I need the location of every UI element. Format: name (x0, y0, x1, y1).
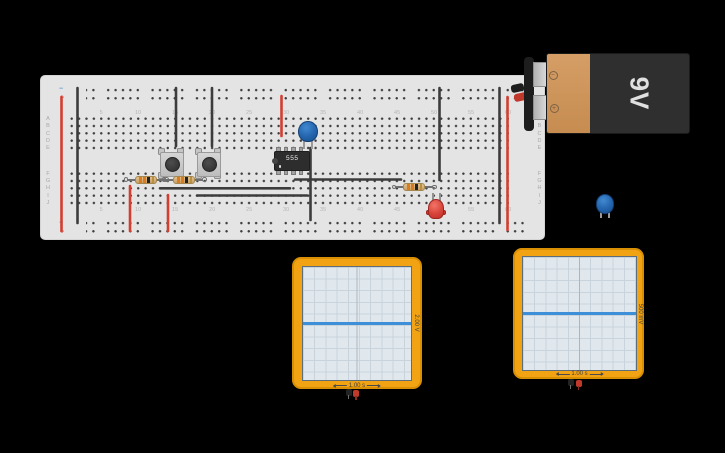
capacitor-leg (311, 141, 313, 149)
resistor-3[interactable] (403, 183, 425, 191)
pushbutton-2[interactable] (195, 148, 224, 179)
oscilloscope-screen (302, 266, 412, 382)
oscilloscope-screen (522, 256, 637, 371)
resistor-lead (165, 179, 173, 181)
resistor-band (139, 177, 142, 183)
ic-notch (272, 158, 278, 164)
resistor-lead-hook (432, 185, 437, 190)
capacitor-leg (303, 141, 305, 149)
pushbutton-1[interactable] (158, 148, 187, 179)
resistor-band (177, 177, 180, 183)
oscilloscope-trace (303, 322, 411, 325)
ic-label: 555 (286, 155, 299, 162)
battery-plus-terminal: + (550, 104, 559, 113)
battery-negative-plug[interactable] (510, 82, 524, 93)
arrow-right-icon (367, 385, 380, 386)
capacitor-disc[interactable] (596, 194, 615, 214)
ic-pin1-dot (279, 165, 282, 168)
oscilloscope-1[interactable]: 2.00 V 1.00 s (292, 257, 422, 389)
resistor-lead (127, 179, 135, 181)
resistor-body[interactable] (173, 176, 195, 184)
volts-per-div-label: 500 mV (637, 303, 643, 324)
capacitor-breadboard[interactable] (298, 121, 318, 149)
battery-body[interactable]: 9V (546, 53, 690, 134)
battery-terminal-stub (533, 95, 547, 121)
resistor-lead-hook (202, 177, 207, 182)
resistor-2[interactable] (173, 176, 195, 184)
resistor-1[interactable] (135, 176, 157, 184)
battery-label: 9V (624, 76, 655, 110)
time-per-div-label: 1.00 s (556, 371, 602, 377)
resistor-band (152, 177, 155, 183)
battery-orange-section (547, 54, 590, 133)
time-per-div-label: 1.00 s (334, 383, 380, 389)
resistor-lead-hook (124, 177, 129, 182)
resistor-body[interactable] (135, 176, 157, 184)
resistor-band (411, 184, 414, 190)
resistor-band (420, 184, 423, 190)
battery-minus-terminal: − (549, 71, 558, 80)
arrow-left-icon (556, 374, 569, 375)
oscilloscope-2[interactable]: 500 mV 1.00 s (513, 248, 644, 379)
resistor-band (415, 184, 418, 190)
oscilloscope1-positive-probe[interactable] (353, 390, 359, 397)
oscilloscope1-negative-probe[interactable] (346, 389, 352, 396)
battery-black-section: 9V (590, 54, 689, 133)
resistor-lead-hook (162, 177, 167, 182)
oscilloscope2-negative-probe[interactable] (568, 379, 574, 386)
resistor-band (143, 177, 146, 183)
resistor-lead-hook (392, 185, 397, 190)
pushbutton-cap[interactable] (202, 157, 217, 172)
pushbutton-cap[interactable] (165, 157, 180, 172)
resistor-band (147, 177, 150, 183)
battery-terminal-stub (533, 62, 547, 88)
capacitor-disc[interactable] (298, 121, 318, 142)
resistor-body[interactable] (403, 183, 425, 191)
resistor-band (407, 184, 410, 190)
capacitor-workspace[interactable] (596, 194, 615, 218)
tinkercad-workspace: − + − + AABBCCDDEEFFGGHHIIJJ551010151520… (0, 0, 725, 453)
resistor-lead (395, 186, 403, 188)
arrow-left-icon (334, 385, 347, 386)
led-bulb[interactable] (428, 199, 444, 219)
ic-555-timer[interactable]: 555 (274, 147, 310, 175)
arrow-right-icon (590, 374, 603, 375)
volts-per-div-label: 2.00 V (413, 314, 419, 331)
battery-9v[interactable]: 9V − + (505, 50, 695, 140)
led-red[interactable] (424, 192, 448, 220)
oscilloscope-trace (523, 312, 636, 315)
resistor-band (185, 177, 188, 183)
oscilloscope2-positive-probe[interactable] (576, 380, 582, 387)
resistor-band (190, 177, 193, 183)
resistor-band (181, 177, 184, 183)
